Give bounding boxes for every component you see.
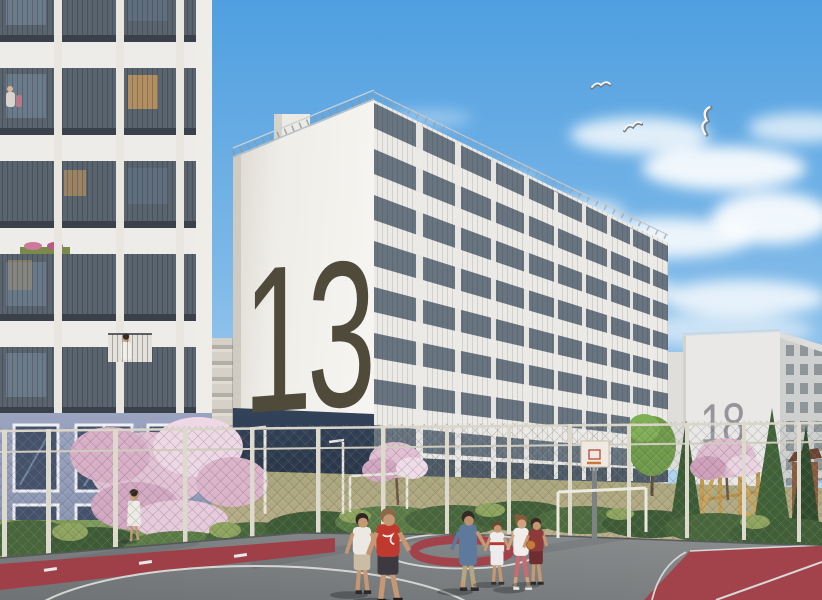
building-13-number: 13	[243, 217, 371, 458]
rendering-stage: 18 13	[0, 0, 822, 600]
left-building-floors	[0, 0, 212, 414]
hoop-pole	[592, 466, 597, 540]
balcony-with-woman	[108, 333, 152, 362]
scene-rendering: 18 13	[0, 0, 822, 600]
basketball	[527, 541, 536, 550]
